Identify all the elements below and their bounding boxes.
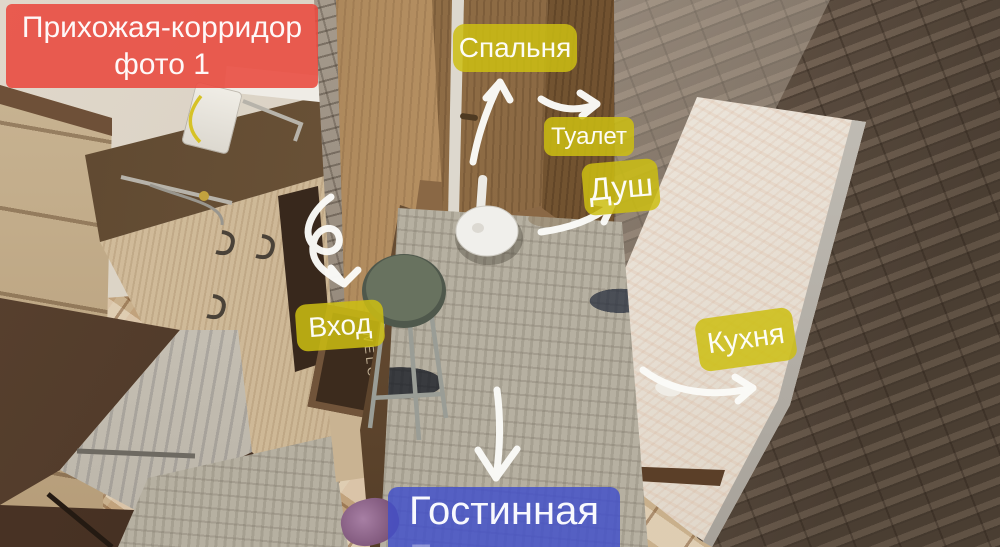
photo-title-line-2: фото 1 [114,46,210,84]
living-room-label-text: Гостинная [409,487,599,535]
living-room-label: Гостинная Гостинная [388,487,620,547]
toilet-label: Туалет [544,117,634,156]
photo-title-label: Прихожая-корридор фото 1 [6,4,318,88]
shower-label: Душ [581,158,661,216]
hallway-photo: WELCOME [0,0,1000,547]
entrance-arrow-icon [308,197,358,284]
living-room-arrow-icon [478,390,517,478]
living-room-label-echo: Гостинная [409,535,599,547]
bedroom-label: Спальня [453,24,577,72]
entrance-label: Вход [294,299,385,352]
kitchen-arrow-icon [643,370,753,401]
photo-title-line-1: Прихожая-корридор [22,9,302,47]
bedroom-arrow-icon [473,82,510,162]
toilet-arrow-icon [541,93,597,116]
